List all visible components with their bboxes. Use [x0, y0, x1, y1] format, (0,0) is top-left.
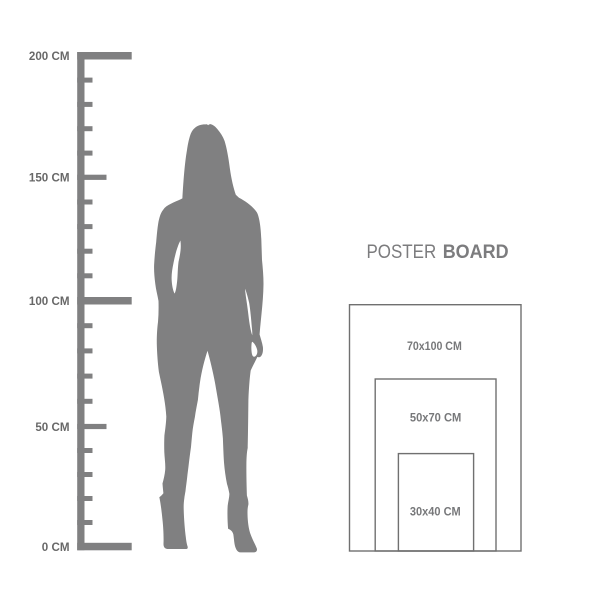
svg-text:150 CM: 150 CM [29, 172, 70, 185]
svg-text:POSTER: POSTER [367, 241, 437, 263]
svg-text:0 CM: 0 CM [42, 541, 70, 554]
svg-text:30x40 CM: 30x40 CM [410, 504, 461, 518]
svg-text:70x100 CM: 70x100 CM [407, 339, 462, 353]
svg-text:50x70 CM: 50x70 CM [410, 410, 461, 424]
svg-text:50 CM: 50 CM [35, 421, 69, 434]
svg-text:200 CM: 200 CM [29, 50, 70, 63]
svg-text:100 CM: 100 CM [29, 295, 70, 308]
svg-text:BOARD: BOARD [443, 241, 509, 263]
